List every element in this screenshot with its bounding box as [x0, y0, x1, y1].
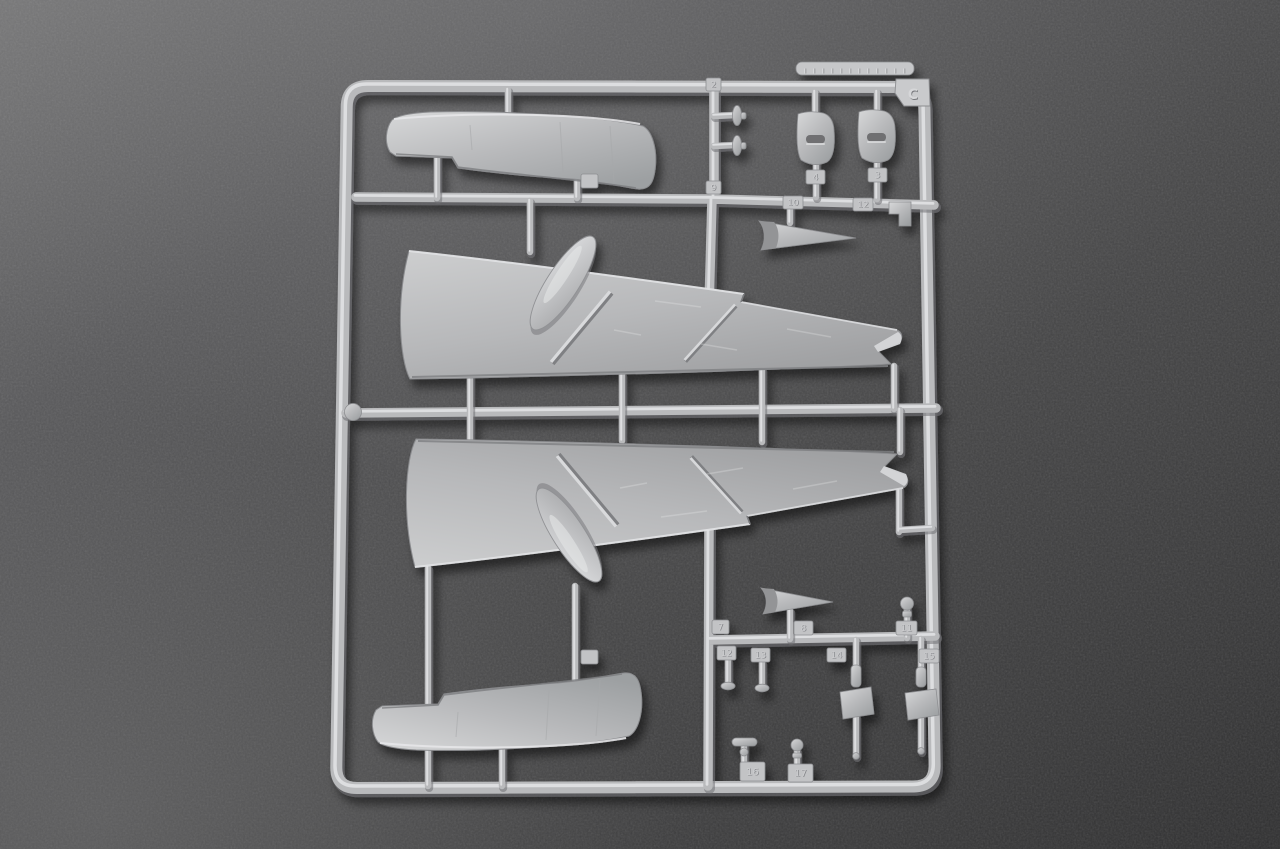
tag-number: 4	[813, 173, 819, 183]
sprue-letter: C	[908, 87, 918, 103]
part-number-tag: 2 2	[706, 78, 721, 91]
part-number-tag: 8 8	[794, 621, 813, 635]
tag-number: 14	[831, 651, 843, 661]
sprue-photo: C C	[0, 0, 1280, 849]
tag-number: 13	[755, 651, 766, 661]
part-number-tag: 14 14	[827, 648, 846, 662]
tag-number: 15	[923, 652, 934, 662]
mushroom-pin-part	[721, 682, 735, 690]
embossed-brand-strip	[796, 62, 914, 75]
gate-tab	[581, 650, 598, 664]
slotted-bracket-part	[858, 110, 895, 163]
tag-number: 9	[711, 184, 717, 194]
tag-number: 2	[711, 81, 717, 91]
part-number-tag: 12 12	[853, 198, 873, 211]
ball-valve-part	[791, 739, 803, 758]
tag-number: 7	[718, 623, 724, 633]
part-number-tag: 12 12	[717, 646, 736, 660]
mushroom-pin-part	[755, 684, 769, 692]
part-number-tag: 13 13	[751, 648, 770, 662]
tag-number: 10	[787, 199, 799, 209]
part-number-tag: 7 7	[712, 620, 729, 634]
sprue-gate-knob	[345, 404, 362, 421]
part-number-tag: 15 15	[919, 649, 939, 663]
tag-number: 12	[857, 201, 868, 211]
part-number-tag: 11 11	[896, 621, 917, 635]
tag-number: 8	[801, 624, 807, 634]
part-number-tag: 3 3	[868, 168, 887, 182]
tag-number: 11	[901, 624, 912, 634]
slotted-bracket-part	[797, 112, 834, 165]
part-number-tag: 17 17	[788, 764, 813, 782]
part-number-tag: 4 4	[806, 170, 825, 184]
part-number-tag: 9 9	[706, 181, 721, 194]
tag-number: 3	[875, 171, 881, 181]
tag-number: 16	[746, 767, 759, 778]
part-number-tag: 10 10	[783, 196, 803, 209]
gate-tab	[581, 174, 598, 188]
part-number-tag: 16 16	[740, 762, 765, 781]
photo-stage: C C	[0, 0, 1280, 849]
ball-pin-part	[901, 597, 914, 617]
tag-number: 12	[721, 649, 732, 659]
tag-number: 17	[794, 769, 807, 780]
